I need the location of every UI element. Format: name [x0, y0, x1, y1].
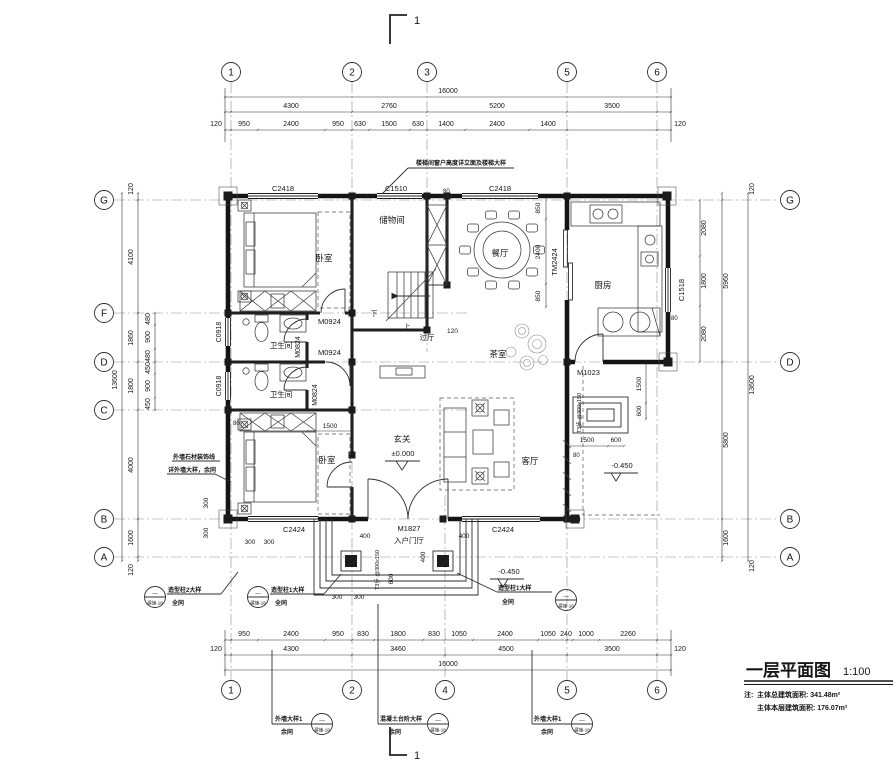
dim: 900	[145, 331, 152, 343]
dim-top-total: 16000	[438, 88, 458, 95]
label-m1023: M1023	[577, 368, 600, 377]
sofa-group	[440, 398, 514, 490]
drawing-title: 一层平面图	[746, 661, 831, 680]
callout-label: 造型柱1大样	[271, 586, 304, 594]
dim: 630	[412, 121, 424, 128]
callout-sub: 全同	[171, 599, 184, 607]
dim: 5800	[723, 432, 730, 448]
dims-top: 16000 4300 2760 5200 3500 950 2400 950 6…	[210, 88, 686, 128]
floor-plan-canvas: 16000 4300 2760 5200 3500 950 2400 950 6…	[0, 0, 895, 763]
axis-left-D: D	[100, 358, 107, 369]
axis-top-3: 3	[424, 68, 430, 79]
wardrobe-top	[240, 291, 316, 311]
door-m0824-bottom	[284, 367, 307, 390]
dim: 480	[145, 313, 152, 325]
dim: 80	[443, 189, 450, 195]
dim: 4000	[128, 457, 135, 473]
dim: 5960	[723, 273, 730, 289]
dims-bottom: 950 2400 950 830 1800 830 1050 2400 1050…	[210, 631, 686, 668]
dim: 950	[238, 631, 250, 638]
dim: 400	[420, 551, 427, 562]
dim: 300	[264, 539, 275, 546]
dim: 1500	[636, 376, 643, 391]
label-c0918-bottom: C0918	[216, 376, 223, 397]
callout-bubble-top: —	[579, 718, 585, 724]
dim: 1600	[723, 530, 730, 546]
dim: 900	[145, 380, 152, 392]
dim: 120	[749, 560, 756, 572]
level-markers: ±0.000 -0.450 -0.450	[385, 449, 638, 587]
axis-left-C: C	[100, 406, 107, 417]
label-m0924-bottom: M0924	[318, 348, 341, 357]
room-bath-top: 卫生间	[270, 340, 293, 350]
dim: 1500	[323, 423, 338, 430]
note-wall-1: 外墙石材装饰线	[172, 453, 215, 461]
dim: 120	[210, 646, 222, 653]
window-c2418-right	[462, 194, 538, 199]
dim: 120	[674, 121, 686, 128]
note-wall-2: 详外墙大样，余同	[168, 466, 216, 474]
bed-top	[238, 200, 316, 302]
door-m0924-bottom	[326, 362, 350, 386]
room-bedroom-bottom: 卧室	[318, 455, 336, 465]
section-marker-bottom: 1	[414, 750, 420, 762]
tv-cabinet	[380, 366, 425, 378]
callout-bubble-ref: 建施-18	[147, 600, 163, 607]
window-c2424-right	[462, 517, 540, 522]
level-porch: -0.450	[498, 567, 519, 576]
label-c1518: C1518	[677, 279, 686, 301]
dim: 830	[357, 631, 369, 638]
door-bedroom2	[327, 462, 352, 487]
dim: 3460	[390, 646, 406, 653]
dim: 120	[128, 183, 135, 195]
dim: 3500	[604, 646, 620, 653]
axis-top-2: 2	[349, 68, 355, 79]
dim: 950	[332, 631, 344, 638]
callout-bubble-ref: 建施-18	[250, 600, 266, 607]
room-labels: 卧室 卧室 储物间 餐厅 厨房 卫生间 卫生间 过厅 茶室 玄关 客厅 入户门厅…	[270, 215, 612, 590]
axis-bottom-2: 2	[349, 686, 355, 697]
dim-bottom-total: 16000	[438, 661, 458, 668]
dim: 1400	[540, 121, 556, 128]
window-c2424-left	[248, 517, 318, 522]
dims-left: 13600 4100 1860 1800 4000 1600 120 120 4…	[112, 183, 152, 576]
window-c0918-bottom	[226, 372, 231, 400]
window-c1510	[377, 194, 422, 199]
wardrobe-bottom	[240, 413, 316, 431]
dim: 1000	[578, 631, 594, 638]
tea-room-stones	[506, 324, 548, 370]
floor-plan-page: 16000 4300 2760 5200 3500 950 2400 950 6…	[0, 0, 895, 763]
callouts: — 建施-18 造型柱2大样 全同 — 建施-18 造型柱1大样 全同 — 建施…	[145, 572, 593, 736]
dim: 300	[332, 594, 343, 601]
label-c2424-right: C2424	[492, 525, 514, 534]
axis-bubbles: 1 2 3 5 6 1 2 4 5 6 G F D C B A G D B A	[95, 63, 800, 700]
axis-right-G: G	[786, 196, 794, 207]
dim: 1500	[580, 437, 595, 444]
dim: 450	[145, 362, 152, 374]
dim: 1050	[451, 631, 467, 638]
closet-dashed-bottom	[318, 434, 350, 514]
callout-sub: 全同	[274, 599, 287, 607]
dim: 120	[447, 328, 458, 335]
room-storage: 储物间	[379, 215, 405, 225]
label-m0824-top: M0824	[295, 336, 302, 358]
room-dining: 餐厅	[491, 248, 509, 258]
dim: 2400	[283, 121, 299, 128]
dim: 300	[203, 497, 210, 508]
dim: 2760	[381, 103, 397, 110]
dim: 3500	[604, 103, 620, 110]
axis-bottom-6: 6	[654, 686, 660, 697]
axis-top-6: 6	[654, 68, 660, 79]
dim: 630	[354, 121, 366, 128]
callout-bubble-top: —	[152, 591, 158, 597]
room-bedroom-top: 卧室	[315, 253, 333, 263]
dim: 600	[388, 573, 395, 584]
dim: 1050	[540, 631, 556, 638]
callout-label: 造型柱1大样	[498, 584, 531, 592]
axis-top-1: 1	[228, 68, 234, 79]
dim: 4100	[128, 249, 135, 265]
dim: 1800	[390, 631, 406, 638]
dim: 1860	[128, 330, 135, 346]
door-m0924-top	[321, 289, 345, 313]
room-bath-bottom: 卫生间	[270, 389, 293, 399]
dim: 4300	[283, 103, 299, 110]
axis-left-G: G	[100, 196, 108, 207]
dim: 2260	[620, 631, 636, 638]
label-c2418-right: C2418	[489, 184, 511, 193]
axis-right-B: B	[787, 515, 794, 526]
callout-bubble-ref: 建施-18	[430, 727, 446, 734]
dim: 600	[636, 405, 643, 416]
dim: 4300	[283, 646, 299, 653]
label-tm2424: TM2424	[550, 248, 559, 276]
dim: 1800	[701, 273, 708, 289]
grid-lines	[114, 82, 779, 680]
callout-bubble-ref: 建施-18	[314, 727, 330, 734]
label-m0924-top: M0924	[318, 317, 341, 326]
dim: 850	[535, 290, 542, 301]
note-label: 注:	[744, 690, 753, 699]
dim: 1800	[128, 378, 135, 394]
dim: 13600	[749, 375, 756, 395]
dim: 80	[573, 453, 580, 459]
axis-left-A: A	[101, 553, 108, 564]
bathroom-bottom-fixtures	[243, 364, 306, 391]
section-marker-top: 1	[414, 15, 420, 27]
callout-bubble-top: —	[435, 718, 441, 724]
callout-bubble-top: —	[255, 591, 261, 597]
callout-bubble-ref: 建施-18	[558, 603, 574, 610]
label-c1510: C1510	[385, 184, 407, 193]
callout-col2: — 建施-18 造型柱2大样 全同	[145, 572, 239, 608]
room-foyer: 入户门厅	[394, 535, 424, 545]
callout-label: 外墙大样1	[533, 715, 562, 723]
dim: 120	[128, 564, 135, 576]
axis-bottom-4: 4	[442, 686, 448, 697]
callout-wall-left: 外墙大样1 余同 — 建施-18	[272, 650, 333, 736]
dim: 4500	[498, 646, 514, 653]
dim: 950	[332, 121, 344, 128]
drawing-scale: 1:100	[843, 666, 871, 678]
axis-left-B: B	[101, 515, 108, 526]
dim: 80	[233, 421, 240, 427]
dim: 120	[749, 183, 756, 195]
note-total-area: 主体总建筑面积: 341.48m²	[757, 690, 841, 699]
dim: 950	[238, 121, 250, 128]
note-floor-area: 主体本层建筑面积: 176.07m²	[757, 703, 848, 712]
callout-bubble-top: —	[563, 594, 569, 600]
bed-bottom	[238, 419, 316, 514]
axis-left-F: F	[101, 309, 107, 320]
callout-label: 造型柱2大样	[168, 586, 201, 594]
door-tm2424-sliding	[564, 230, 573, 300]
dim: 2080	[701, 220, 708, 236]
axis-bottom-5: 5	[564, 686, 570, 697]
steps-note-porch: T3步 @300x150	[374, 550, 381, 590]
dim: 2400	[283, 631, 299, 638]
dim: 2400	[497, 631, 513, 638]
dim: 300	[354, 594, 365, 601]
label-m0824-bottom: M0824	[312, 384, 319, 406]
dim: 5200	[489, 103, 505, 110]
callout-sub: 余同	[540, 728, 553, 736]
dim: 600	[611, 437, 622, 444]
stairs-down-label: 下	[371, 310, 378, 318]
callout-wall-right: 外墙大样1 余同 — 建施-18	[532, 650, 593, 736]
room-kitchen: 厨房	[594, 280, 611, 290]
label-c0918-top: C0918	[216, 322, 223, 343]
callout-label: 混凝土台阶大样	[380, 715, 422, 723]
dim: 480	[145, 350, 152, 362]
dim: 830	[428, 631, 440, 638]
callout-bubble-top: —	[319, 718, 325, 724]
furniture	[238, 200, 662, 595]
label-m1827: M1827	[398, 524, 421, 533]
callout-label: 外墙大样1	[274, 715, 303, 723]
dim: 2400	[535, 244, 542, 259]
stairs-up-label: 上	[404, 322, 411, 331]
callout-sub: 全同	[501, 598, 514, 606]
door-m1023	[575, 334, 603, 362]
title-block: 一层平面图 1:100 注: 主体总建筑面积: 341.48m² 主体本层建筑面…	[744, 661, 893, 712]
level-terrace: -0.450	[611, 461, 632, 470]
callout-col1-left: — 建施-18 造型柱1大样 全同	[248, 574, 342, 608]
window-c0918-top	[226, 318, 231, 346]
window-c1518	[666, 268, 671, 312]
dim: 120	[210, 121, 222, 128]
dim: 240	[560, 631, 572, 638]
room-hall: 过厅	[420, 332, 435, 342]
dim: 80	[671, 316, 678, 322]
axis-right-A: A	[787, 553, 794, 564]
room-entry: 玄关	[393, 434, 411, 444]
door-m1827-double	[368, 479, 448, 519]
duct-shaft	[427, 205, 447, 285]
dim: 13600	[112, 370, 119, 390]
dim: 300	[245, 539, 256, 546]
opening-labels: C2418 C1510 C2418 C1518 C2424 C2424 C091…	[216, 184, 686, 534]
axis-top-5: 5	[564, 68, 570, 79]
walls	[228, 196, 668, 519]
dim: 400	[459, 533, 470, 540]
window-c2418-left	[248, 194, 318, 199]
axis-bottom-1: 1	[228, 686, 234, 697]
room-living: 客厅	[521, 456, 539, 466]
level-entry: ±0.000	[392, 449, 415, 458]
room-tea: 茶室	[489, 349, 507, 359]
d im: 2080	[701, 326, 708, 342]
steps-note-terrace: T3步 @300x150	[576, 393, 583, 433]
callout-bubble-ref: 建施-18	[574, 727, 590, 734]
dim: 450	[145, 398, 152, 410]
axis-right-D: D	[786, 358, 793, 369]
dim: 1500	[381, 121, 397, 128]
dim: 400	[360, 533, 371, 540]
callout-sub: 余同	[280, 728, 293, 736]
note-stair-window: 楼梯间窗户高度详立面及楼梯大样	[416, 159, 506, 167]
label-c2418-left: C2418	[272, 184, 294, 193]
kitchen-fixtures	[571, 202, 662, 336]
dim: 850	[535, 202, 542, 213]
dim: 1400	[438, 121, 454, 128]
dim: 1600	[128, 530, 135, 546]
dim: 120	[674, 646, 686, 653]
label-c2424-left: C2424	[283, 525, 305, 534]
dim: 300	[203, 527, 210, 538]
dim: 2400	[489, 121, 505, 128]
